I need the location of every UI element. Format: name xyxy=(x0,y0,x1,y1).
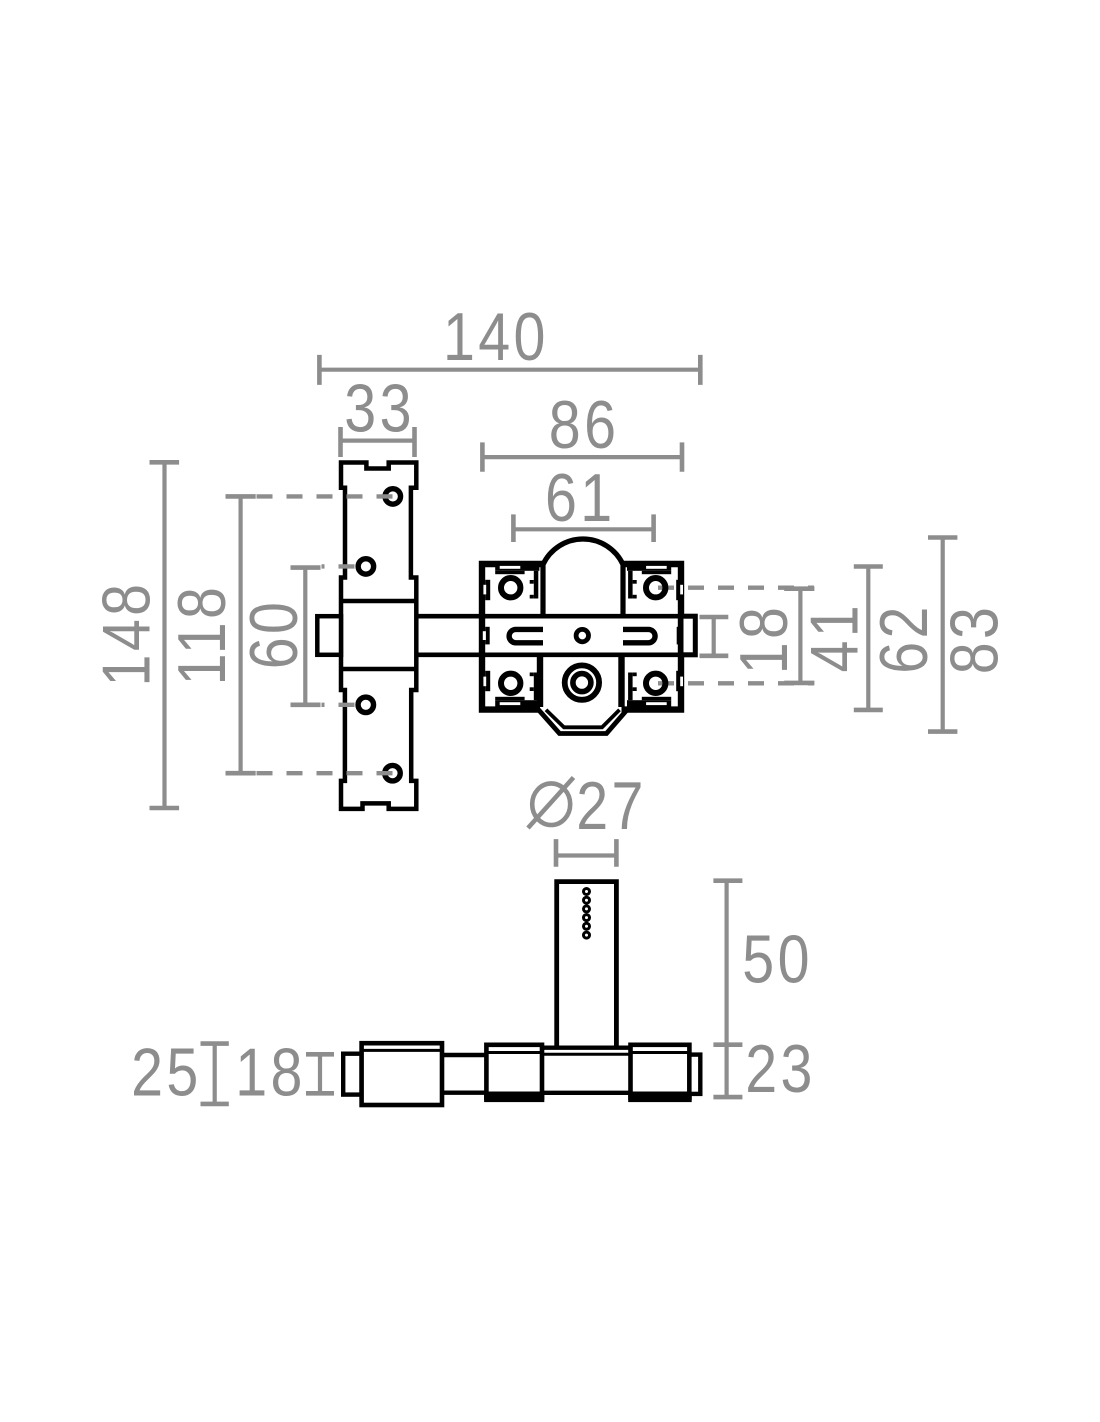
svg-text:25: 25 xyxy=(131,1035,202,1110)
svg-text:18: 18 xyxy=(727,604,802,675)
svg-text:27: 27 xyxy=(576,768,647,843)
svg-text:23: 23 xyxy=(745,1032,816,1107)
svg-text:86: 86 xyxy=(549,388,620,463)
svg-text:62: 62 xyxy=(867,603,942,674)
svg-text:61: 61 xyxy=(545,460,616,535)
svg-text:33: 33 xyxy=(344,371,415,446)
svg-text:83: 83 xyxy=(937,604,1012,675)
svg-text:41: 41 xyxy=(797,602,872,673)
svg-text:18: 18 xyxy=(235,1035,306,1110)
svg-text:50: 50 xyxy=(742,922,813,997)
svg-text:148: 148 xyxy=(89,581,164,687)
svg-text:118: 118 xyxy=(165,584,240,686)
svg-text:60: 60 xyxy=(237,599,312,670)
svg-text:140: 140 xyxy=(443,300,549,375)
